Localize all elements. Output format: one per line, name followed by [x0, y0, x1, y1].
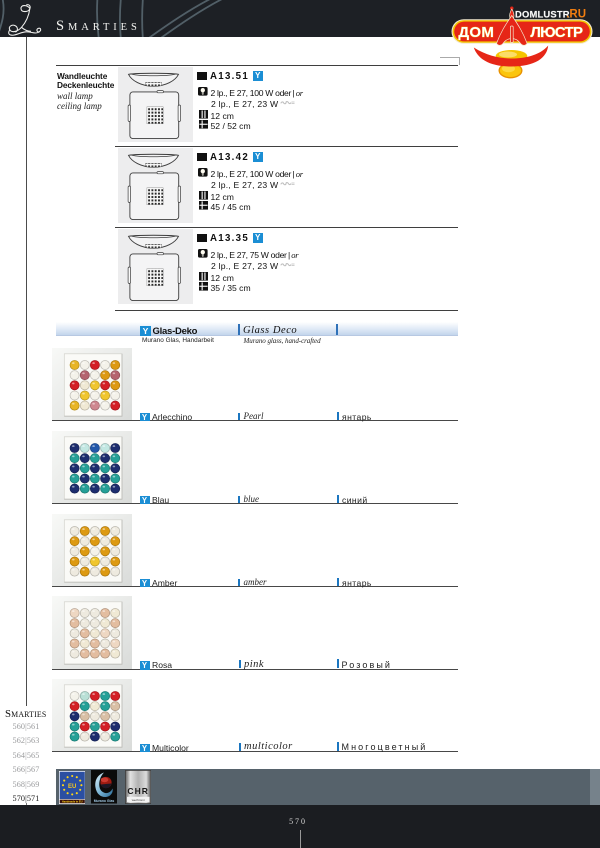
svg-text:Murano Glas: Murano Glas — [94, 799, 115, 803]
svg-text:EU: EU — [68, 784, 76, 790]
svg-text:wechromi: wechromi — [131, 797, 144, 801]
svg-text:ДОМ: ДОМ — [458, 24, 494, 41]
svg-text:ЛЮСТР: ЛЮСТР — [530, 24, 583, 41]
svg-text:.RU: .RU — [566, 9, 586, 21]
svg-text:Handmade in EU: Handmade in EU — [61, 799, 82, 803]
svg-text:CHR: CHR — [127, 786, 149, 796]
svg-text:DOMLUSTR: DOMLUSTR — [515, 8, 570, 19]
